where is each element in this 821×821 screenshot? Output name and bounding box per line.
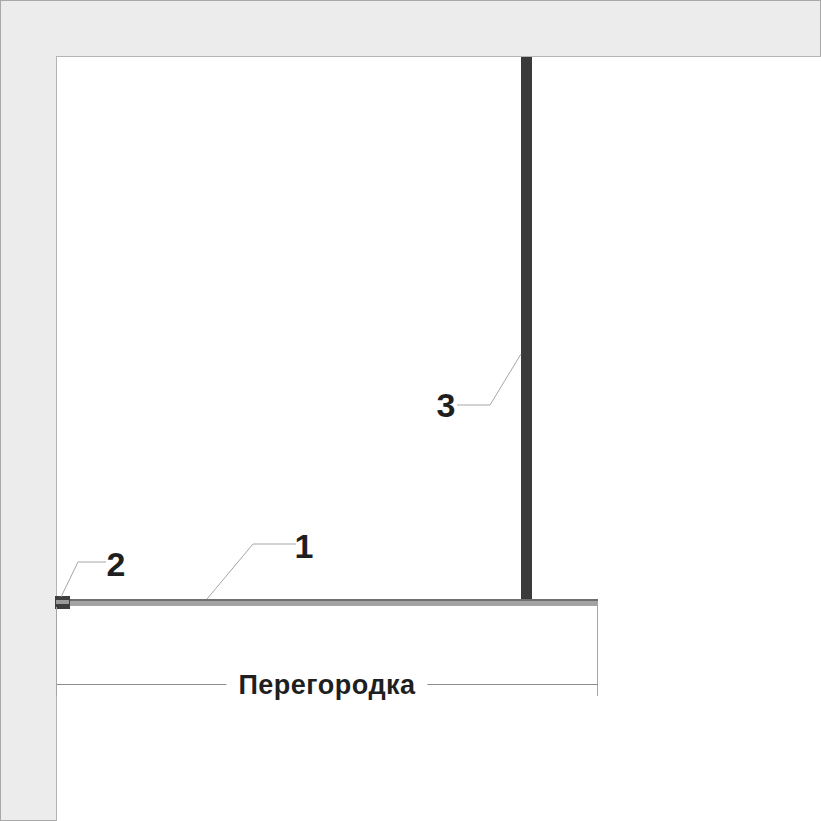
drawing-area [56,56,821,821]
callout-label-2: 2 [107,547,126,581]
drawing-canvas: Перегородка 1 2 3 [0,0,821,821]
callout-label-3: 3 [437,388,456,422]
callout-label-1: 1 [295,529,314,563]
dimension-label: Перегородка [226,670,427,701]
dimension-extension-line-right [597,604,598,696]
track-end-cap [55,596,70,609]
partition-track [56,599,598,606]
vertical-partition-profile [521,57,532,606]
dimension-extension-line-left [56,607,57,696]
